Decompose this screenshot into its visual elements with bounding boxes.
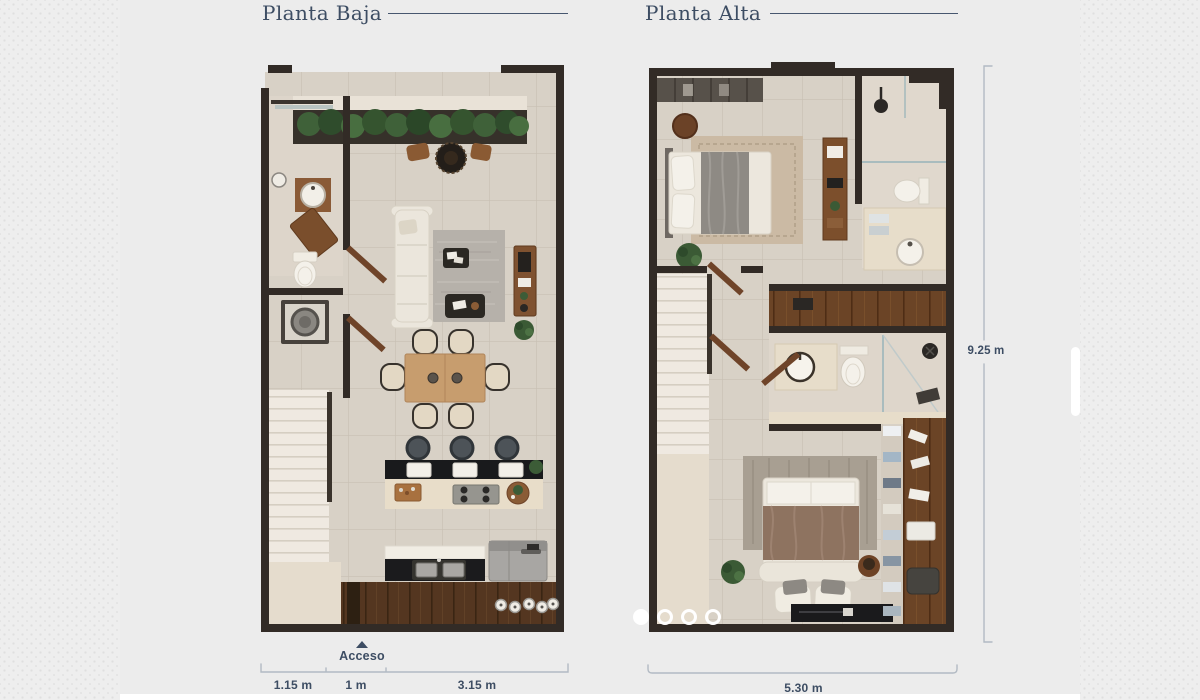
dimension-label-3-15m: 3.15 m	[386, 678, 568, 692]
dimension-bracket-bottom-right	[644, 664, 961, 676]
floorplan-planta-baja	[255, 60, 570, 638]
pa-corridor-console	[769, 291, 954, 326]
acceso-arrow-icon	[356, 641, 368, 648]
carousel-dot-3[interactable]	[681, 609, 697, 625]
dimension-bracket-bottom-left	[256, 662, 572, 676]
plan-title-planta-baja: Planta Baja	[262, 0, 382, 26]
dimension-label-9-25m: 9.25 m	[958, 345, 1014, 357]
carousel-dot-1[interactable]	[633, 609, 649, 625]
plan-title-planta-alta: Planta Alta	[645, 0, 761, 26]
floorplans-page: { "window": {"width": 1200, "height": 70…	[0, 0, 1200, 700]
scrollbar-thumb[interactable]	[1071, 347, 1080, 416]
carousel	[633, 609, 721, 625]
dimension-label-1-15m: 1.15 m	[258, 678, 328, 692]
floorplan-planta-alta	[643, 60, 960, 640]
next-section-edge	[120, 694, 1080, 700]
carousel-dot-4[interactable]	[705, 609, 721, 625]
title-rule-right	[770, 13, 958, 14]
dimension-label-1m: 1 m	[326, 678, 386, 692]
pb-laundry	[281, 300, 329, 344]
carousel-dot-2[interactable]	[657, 609, 673, 625]
acceso-label: Acceso	[322, 649, 402, 663]
title-rule-left	[388, 13, 568, 14]
dimension-label-5-30m: 5.30 m	[648, 681, 959, 695]
